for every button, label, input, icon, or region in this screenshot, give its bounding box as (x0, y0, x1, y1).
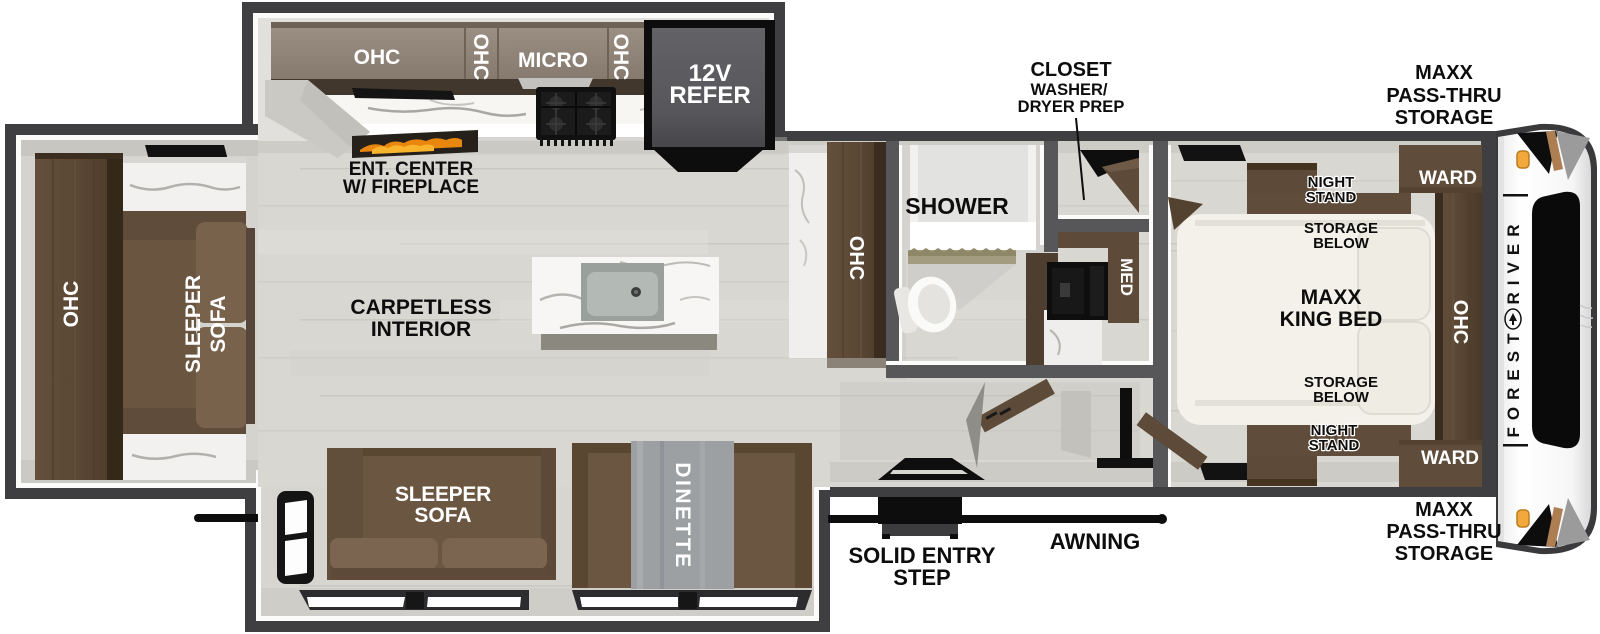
svg-text:PASS-THRU: PASS-THRU (1386, 521, 1501, 543)
svg-text:OHC: OHC (609, 34, 632, 81)
svg-text:STAND: STAND (1309, 437, 1360, 454)
svg-text:KING BED: KING BED (1280, 308, 1383, 331)
svg-text:W/ FIREPLACE: W/ FIREPLACE (343, 177, 479, 198)
svg-text:SHOWER: SHOWER (905, 193, 1009, 219)
svg-text:OHC: OHC (60, 281, 83, 328)
svg-text:OHC: OHC (1449, 300, 1471, 344)
svg-text:FOREST: FOREST (1504, 327, 1523, 438)
svg-text:MAXX: MAXX (1415, 62, 1473, 84)
svg-text:OHC: OHC (354, 46, 401, 69)
svg-text:DINETTE: DINETTE (671, 462, 694, 569)
svg-text:SOFA: SOFA (414, 504, 471, 527)
svg-text:STAND: STAND (1306, 189, 1357, 206)
svg-text:WASHER/: WASHER/ (1030, 81, 1107, 99)
svg-text:OHC: OHC (469, 34, 492, 81)
svg-text:SLEEPER: SLEEPER (182, 275, 205, 373)
svg-text:MAXX: MAXX (1415, 499, 1473, 521)
svg-text:SLEEPER: SLEEPER (395, 483, 491, 506)
svg-text:MICRO: MICRO (518, 49, 588, 72)
svg-text:STEP: STEP (893, 565, 950, 590)
svg-text:OHC: OHC (845, 236, 867, 280)
svg-text:MAXX: MAXX (1301, 286, 1362, 309)
svg-text:STORAGE: STORAGE (1395, 107, 1494, 129)
svg-text:CARPETLESS: CARPETLESS (350, 296, 491, 319)
svg-text:AWNING: AWNING (1050, 529, 1140, 554)
svg-text:WARD: WARD (1421, 448, 1479, 469)
svg-text:STORAGE: STORAGE (1395, 543, 1494, 565)
svg-text:RIVER: RIVER (1504, 218, 1523, 305)
svg-text:BELOW: BELOW (1313, 235, 1370, 252)
svg-text:DRYER PREP: DRYER PREP (1018, 98, 1125, 116)
svg-text:PASS-THRU: PASS-THRU (1386, 85, 1501, 107)
svg-text:BELOW: BELOW (1313, 389, 1370, 406)
svg-text:MED: MED (1117, 258, 1136, 296)
svg-text:INTERIOR: INTERIOR (371, 318, 471, 341)
svg-text:CLOSET: CLOSET (1030, 59, 1111, 81)
svg-text:WARD: WARD (1419, 168, 1477, 189)
svg-text:SOFA: SOFA (207, 295, 230, 352)
svg-text:REFER: REFER (669, 82, 750, 109)
